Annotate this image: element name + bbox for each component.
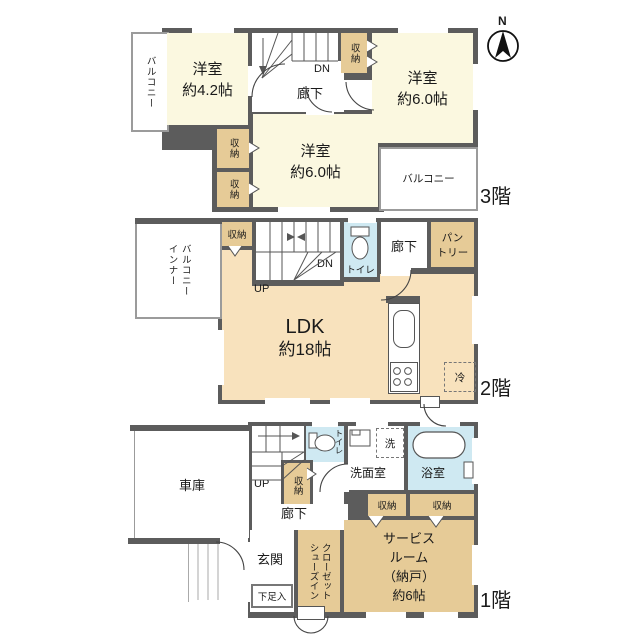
f1-front-door	[297, 606, 325, 620]
f1-stair-storage: 収納	[281, 460, 313, 510]
f3-room-a-size: 約4.2帖	[182, 79, 233, 100]
f1-window	[472, 545, 478, 585]
f1-sic-line2: クローゼット	[320, 543, 331, 600]
f1-bathroom-label: 浴室	[421, 466, 445, 480]
f3-room-b-size: 約6.0帖	[397, 88, 448, 109]
f3-storage-top-label: 収納	[348, 43, 359, 64]
f2-window	[348, 218, 376, 223]
fridge-label: 冷	[455, 370, 466, 385]
f1-door-opening	[344, 464, 349, 492]
ldk-strip	[222, 250, 252, 286]
f2-hallway: 廊下	[381, 222, 427, 268]
fridge: 冷	[444, 362, 476, 392]
f3-door-opening	[306, 108, 334, 115]
f3-window	[278, 207, 330, 212]
f3-western-room-6-center: 洋室 約6.0帖	[253, 114, 378, 207]
f3-western-room-6-right: 洋室 約6.0帖	[372, 33, 473, 143]
f2-dn-label: DN	[317, 258, 333, 271]
f3-room-c-name: 洋室	[300, 140, 330, 161]
f3-balcony-right: バルコニー	[379, 147, 478, 211]
ldk-label: LDK 約18帖	[240, 316, 370, 360]
f2-toilet: トイレ	[344, 222, 377, 277]
f2-inner-balcony-label: インナー バルコニー	[166, 244, 190, 297]
f1-up-label: UP	[254, 478, 269, 491]
f1-storage-a-label: 収納	[377, 498, 396, 512]
f3-window	[398, 28, 448, 33]
floor-plan: バルコニー 洋室 約4.2帖 廊下 DN 収納 洋室 約6.0帖 収納 収納 洋…	[0, 0, 640, 640]
f2-stairs	[256, 222, 340, 280]
f3-window	[192, 28, 234, 33]
f2-inner-balcony: インナー バルコニー	[135, 224, 222, 319]
f1-toilet-label: トイレ	[334, 429, 344, 455]
f3-hallway-label: 廊下	[297, 86, 323, 101]
f1-porch	[188, 544, 254, 602]
f3-hallway-landing	[252, 79, 284, 112]
kitchen-sink	[393, 310, 415, 348]
f3-door-opening	[248, 66, 253, 96]
f1-sic-line1: シューズイン	[307, 543, 318, 600]
f2-floor-label: 2階	[480, 378, 511, 402]
f2-window	[265, 398, 310, 404]
f1-shoe-box: 下足入	[251, 584, 293, 608]
f2-inner-balcony-line2: バルコニー	[180, 244, 191, 297]
f1-service-line3: （納戸）	[383, 566, 435, 585]
f1-washroom-label: 洗面室	[350, 466, 386, 480]
f1-sic-label: シューズイン クローゼット	[307, 543, 330, 600]
f3-storage-mid2-label: 収納	[227, 179, 238, 200]
f1-storage-a: 収納	[368, 494, 406, 516]
f1-entrance-label: 玄関	[257, 552, 283, 567]
compass-icon	[488, 31, 518, 61]
f2-pantry-line1: パン	[442, 230, 464, 245]
f2-up-label: UP	[254, 283, 269, 296]
f2-storage-label: 収納	[227, 227, 246, 241]
f2-storage: 収納	[222, 222, 252, 246]
f2-toilet-label: トイレ	[346, 265, 375, 276]
f3-dn-label: DN	[314, 63, 330, 76]
f1-service-line4: 約6帖	[392, 585, 425, 604]
f1-service-room: サービス ルーム （納戸） 約6帖	[344, 520, 474, 612]
f1-door-opening	[246, 542, 253, 572]
f3-western-room-4-2: 洋室 約4.2帖	[167, 33, 248, 125]
f2-pantry: パン トリー	[431, 222, 474, 267]
f3-window	[162, 48, 167, 103]
f1-storage-b-label: 収納	[432, 498, 451, 512]
f1-window	[424, 612, 458, 618]
f1-garage: 車庫	[134, 431, 249, 538]
f2-window	[472, 296, 478, 344]
f1-window	[420, 422, 460, 427]
f1-service-line2: ルーム	[390, 547, 429, 566]
f3-door-opening-roomb	[344, 80, 374, 110]
ldk-size: 約18帖	[240, 340, 370, 360]
f1-garage-label: 車庫	[179, 475, 205, 494]
f1-stair-storage-label: 収納	[291, 476, 302, 495]
f1-shoes-in-closet: シューズイン クローゼット	[298, 530, 340, 612]
f2-window	[330, 398, 370, 404]
f2-pantry-line2: トリー	[437, 245, 469, 260]
f3-room-c-size: 約6.0帖	[290, 161, 341, 182]
f3-balcony-right-label: バルコニー	[402, 173, 454, 185]
f1-storage-b: 収納	[410, 494, 474, 516]
f1-window	[472, 438, 478, 484]
ldk-under-toilet	[344, 282, 381, 286]
f2-window	[218, 330, 224, 385]
f1-floor-label: 1階	[480, 590, 511, 614]
f1-shoe-box-label: 下足入	[258, 589, 287, 603]
compass-north-label: N	[498, 14, 507, 28]
f2-exterior-door	[420, 396, 440, 408]
f3-floor-label: 3階	[480, 186, 511, 210]
kitchen-stove	[390, 362, 418, 392]
f2-hallway-label: 廊下	[391, 236, 417, 255]
f3-storage-mid1: 収納	[217, 129, 249, 168]
f2-door-opening	[381, 268, 411, 276]
f1-service-line1: サービス	[383, 528, 435, 547]
f1-window	[356, 422, 388, 427]
f3-window	[473, 64, 478, 110]
f3-balcony-left-label: バルコニー	[144, 56, 155, 109]
kitchen-counter-wall	[386, 296, 420, 303]
f3-storage-top: 収納	[341, 33, 367, 73]
f3-room-a-name: 洋室	[192, 58, 222, 79]
f1-toilet: トイレ	[306, 426, 344, 462]
f3-storage-mid2: 収納	[217, 172, 249, 207]
f3-storage-mid1-label: 収納	[227, 138, 238, 159]
f2-inner-balcony-line1: インナー	[166, 244, 177, 297]
f1-hallway-label: 廊下	[281, 506, 307, 521]
f1-window	[312, 422, 338, 427]
f1-bathroom	[408, 426, 474, 490]
f3-room-b-name: 洋室	[407, 67, 437, 88]
f1-washer: 洗	[376, 428, 404, 458]
ldk-name: LDK	[240, 316, 370, 340]
f1-washer-label: 洗	[385, 436, 396, 451]
f1-window	[366, 612, 406, 618]
